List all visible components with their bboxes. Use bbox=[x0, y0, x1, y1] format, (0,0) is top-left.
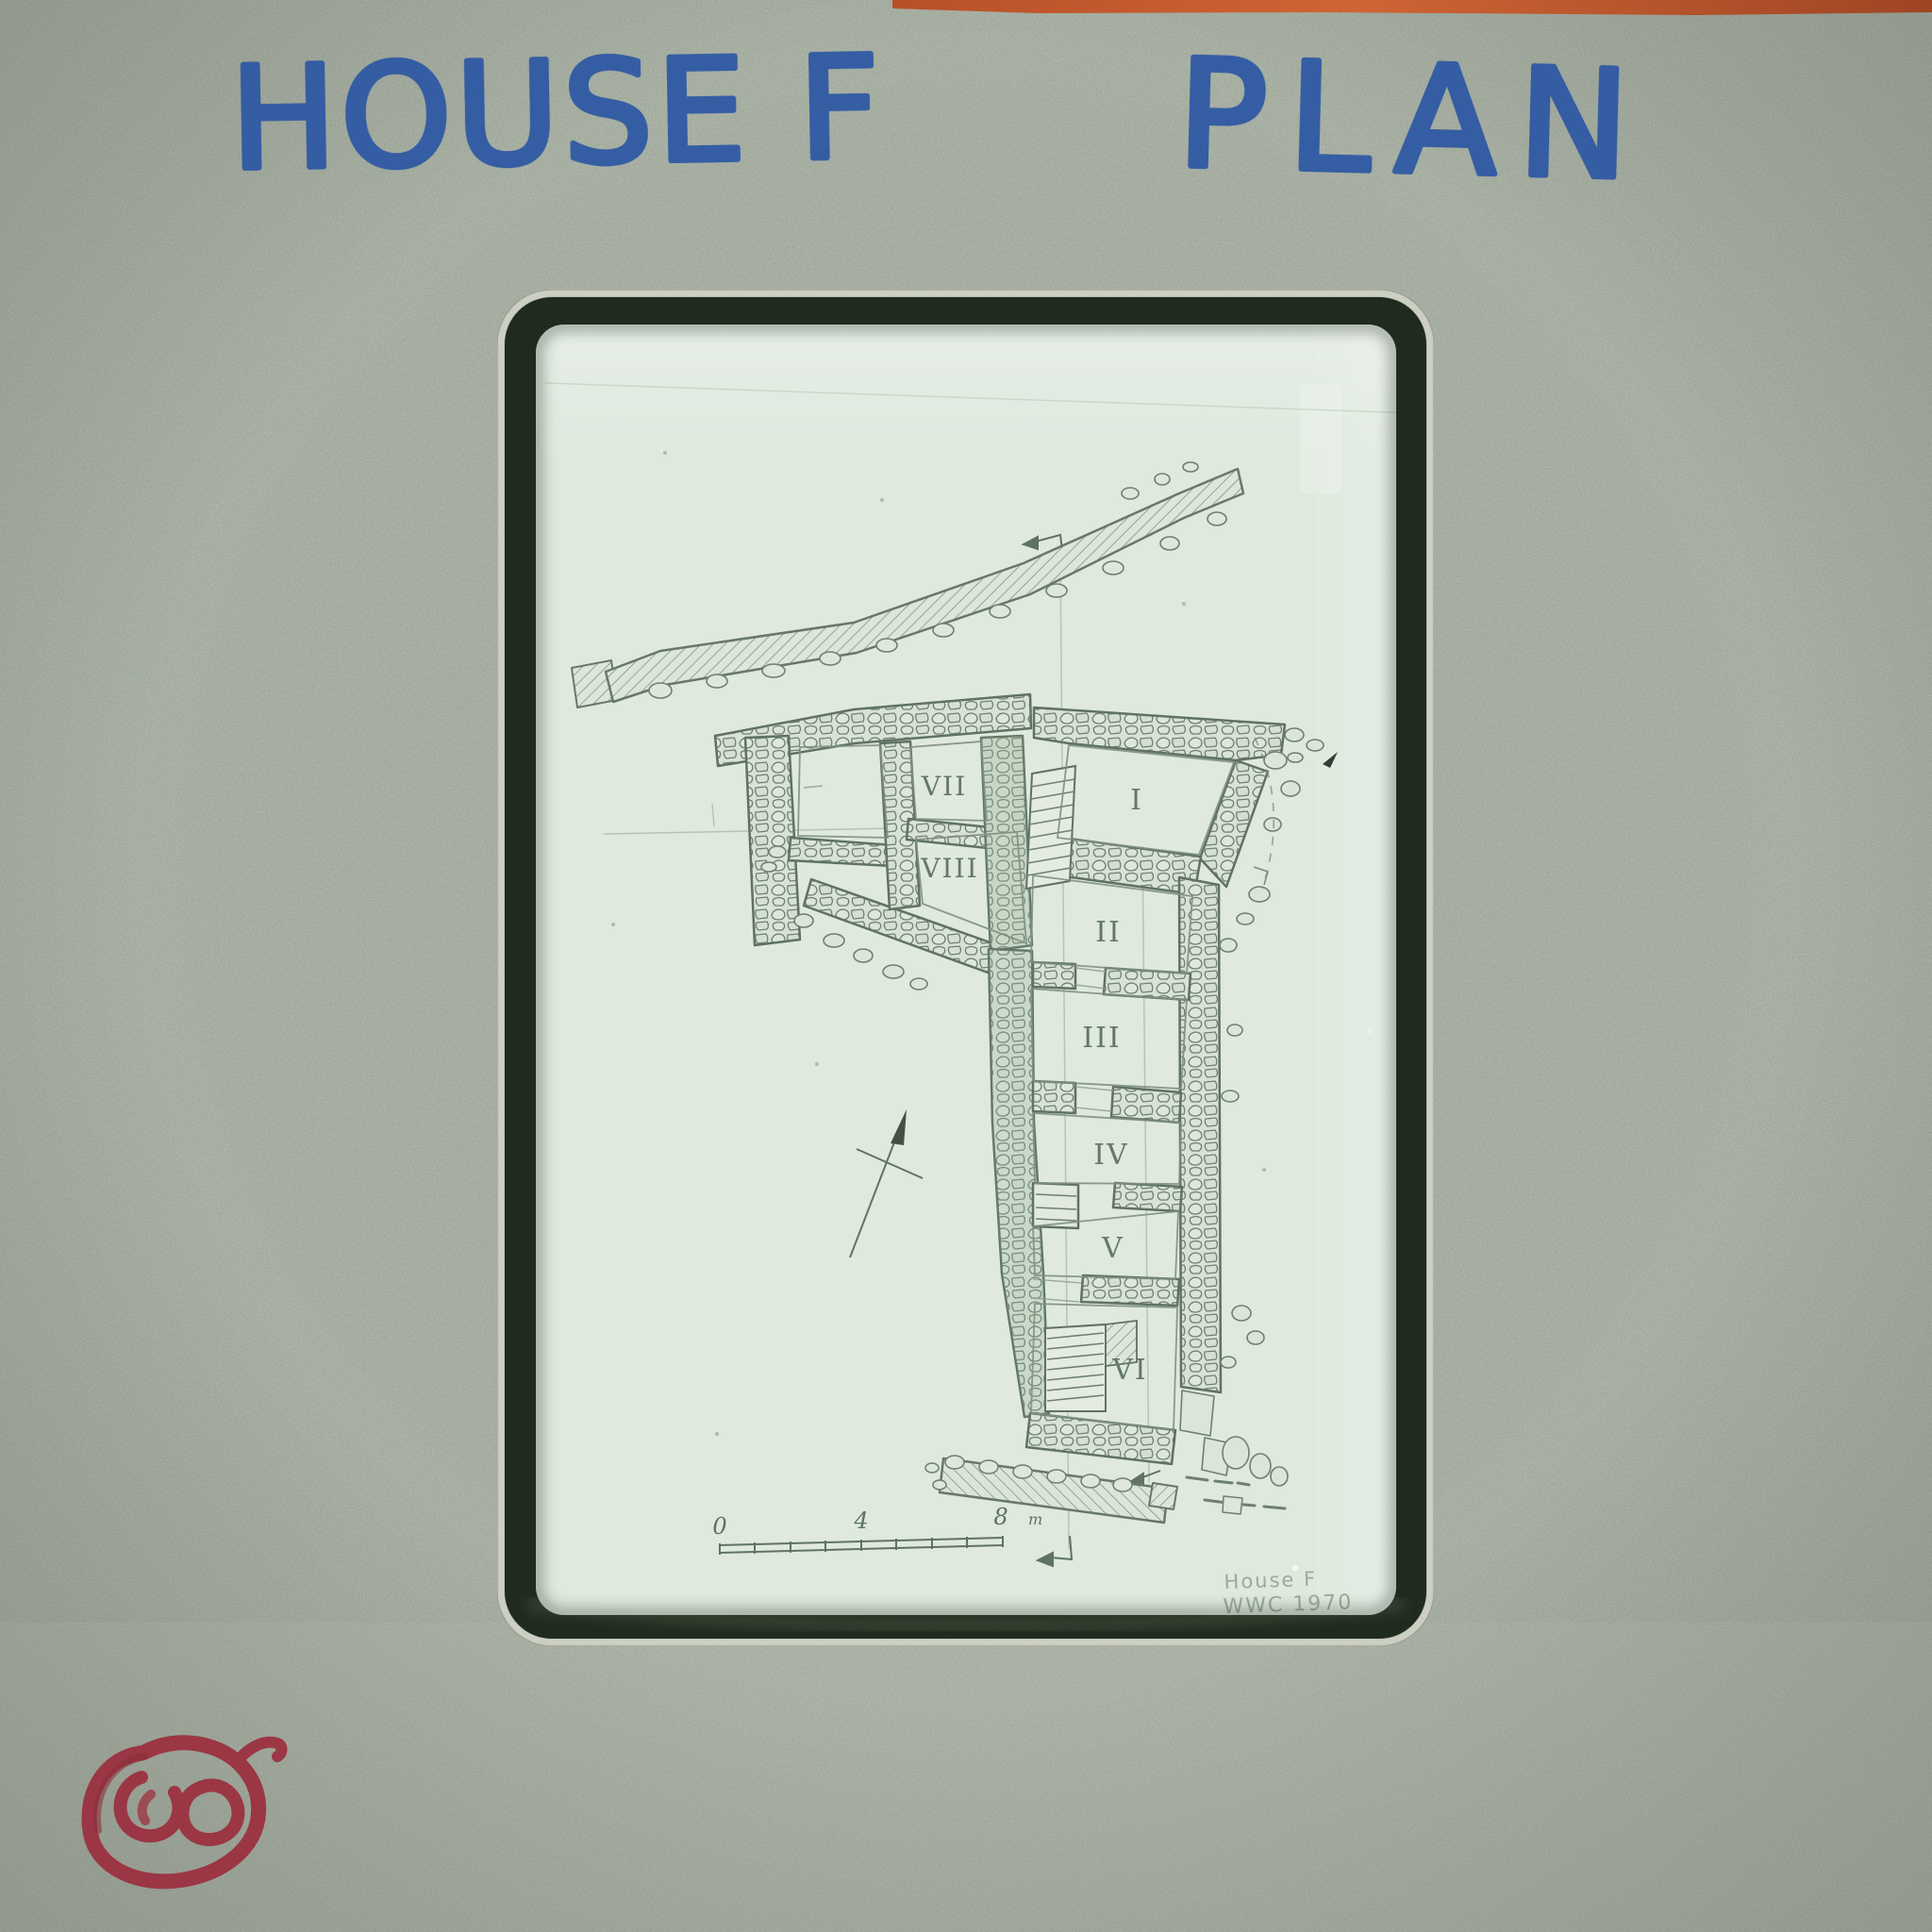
film-light-band-top bbox=[536, 325, 1396, 466]
room-label-iii: III bbox=[1082, 1022, 1122, 1055]
pier-iii-iv-east bbox=[1111, 1087, 1181, 1123]
wall-east-column bbox=[1179, 877, 1221, 1392]
film-light-patch bbox=[1300, 385, 1341, 493]
slide-window bbox=[498, 291, 1433, 1645]
mount-bottom-light bbox=[0, 1623, 1932, 1932]
film-surface bbox=[536, 325, 1396, 1615]
room-label-ii: II bbox=[1095, 916, 1122, 949]
orange-tape-strip bbox=[892, 0, 1932, 15]
room-label-vi: VI bbox=[1111, 1354, 1148, 1387]
pier-iv-v-east bbox=[1113, 1183, 1182, 1211]
room-label-i: I bbox=[1130, 784, 1143, 817]
room-label-iv: IV bbox=[1093, 1139, 1129, 1172]
pier-iv-v-west bbox=[1033, 1183, 1078, 1228]
scale-label-0: 0 bbox=[712, 1513, 726, 1540]
film-white-speck bbox=[1368, 1029, 1373, 1034]
handwritten-title-house-f: HOUSE F bbox=[229, 26, 886, 202]
pier-iii-iv-west bbox=[1033, 1081, 1075, 1113]
slide-photo: HOUSE F PLAN bbox=[0, 0, 1932, 1932]
room-label-vii: VII bbox=[921, 771, 967, 802]
caption-line-1: House F bbox=[1224, 1568, 1317, 1593]
film-light-band-right bbox=[1311, 325, 1396, 1615]
wall-v-vi bbox=[1081, 1275, 1179, 1306]
slide-scene: HOUSE F PLAN bbox=[0, 0, 1932, 1932]
scale-label-8: 8 bbox=[993, 1504, 1008, 1530]
scale-label-unit: m bbox=[1028, 1510, 1042, 1528]
pier-ii-iii-west bbox=[1033, 962, 1075, 989]
staircase-upper bbox=[1026, 766, 1075, 889]
room-label-v: V bbox=[1101, 1232, 1124, 1265]
room-label-viii: VIII bbox=[920, 853, 978, 884]
handwritten-title-plan: PLAN bbox=[1175, 27, 1653, 213]
scale-label-4: 4 bbox=[853, 1507, 868, 1534]
film-white-speck bbox=[1292, 1565, 1299, 1572]
